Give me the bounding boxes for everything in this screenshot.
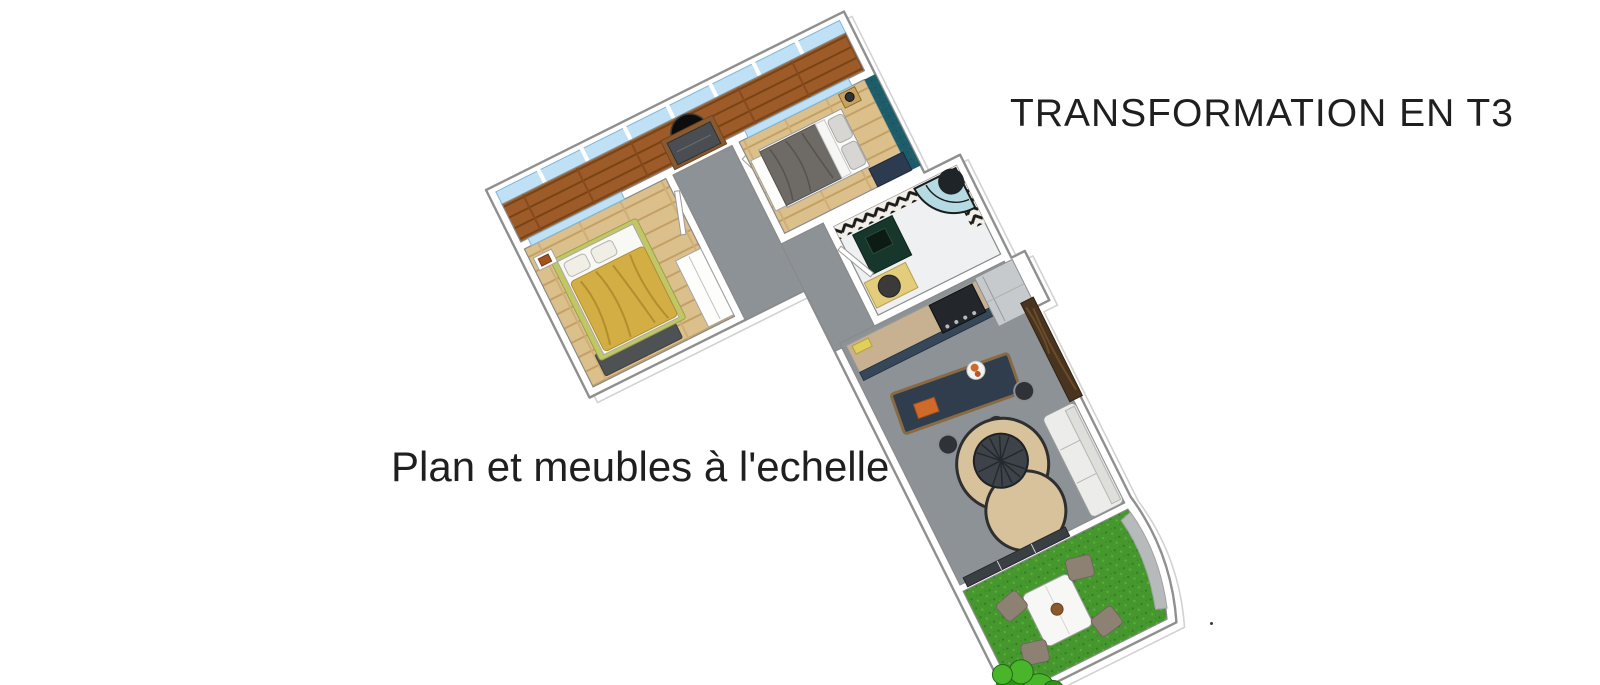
plan-title: TRANSFORMATION EN T3 [1010, 94, 1514, 133]
stray-dot [1210, 622, 1213, 625]
plan-caption: Plan et meubles à l'echelle [391, 446, 889, 488]
page: TRANSFORMATION EN T3 Plan et meubles à l… [0, 0, 1600, 685]
